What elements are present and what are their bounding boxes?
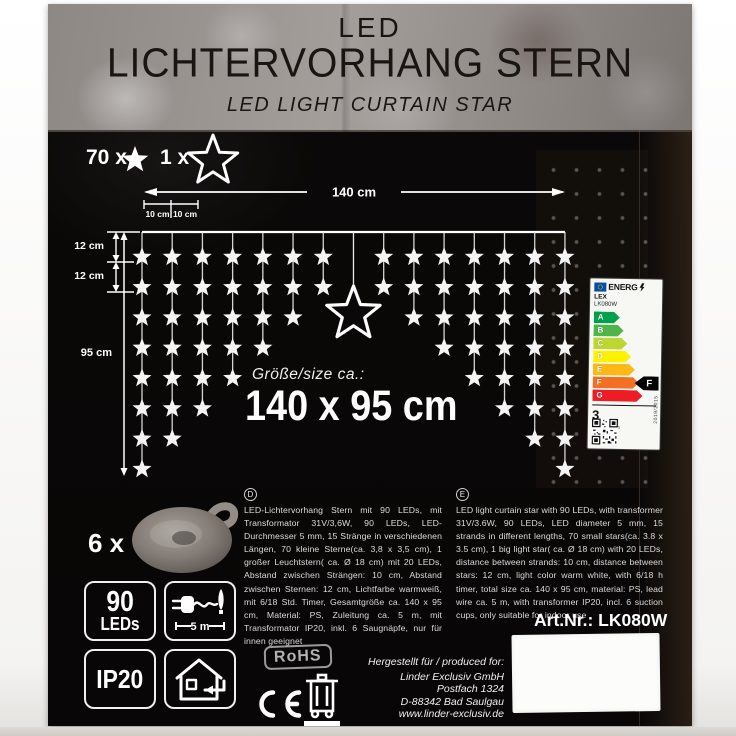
producer-city: D-88342 Bad Saulgau — [338, 696, 504, 709]
product-box-front: LED LICHTERVORHANG STERN LED LIGHT CURTA… — [48, 4, 692, 726]
energy-word: ENERG — [608, 282, 637, 293]
energy-class-arrow: A — [594, 311, 620, 323]
energy-class-arrow: G — [592, 389, 642, 401]
product-photo: { "header": { "brand": "LED", "title": "… — [0, 0, 736, 736]
rohs-badge: RoHS — [264, 644, 332, 670]
power-plug-icon: 5 m — [169, 585, 231, 637]
description-german-text: LED-Lichtervorhang Stern mit 90 LEDs, mi… — [244, 505, 442, 646]
badge-indoor-use — [164, 649, 236, 709]
article-number: Art.Nr.: LK080W — [534, 610, 664, 631]
description-german: D LED-Lichtervorhang Stern mit 90 LEDs, … — [244, 488, 442, 648]
small-star-icon — [163, 429, 182, 447]
energy-class-row-G: G — [592, 389, 656, 403]
small-star-icon — [555, 459, 574, 477]
ce-mark-icon — [252, 688, 304, 720]
small-star-icon — [435, 338, 454, 356]
suction-cup-image — [126, 482, 244, 576]
dimension-label: 10 cm — [173, 209, 198, 219]
description-english: E LED light curtain star with 90 LEDs, w… — [456, 488, 663, 622]
small-star-icon — [223, 368, 242, 386]
small-star-icon — [525, 429, 544, 447]
small-star-icon — [465, 368, 484, 386]
house-indoor-icon — [172, 654, 228, 704]
energy-label-header: ENERG — [594, 281, 658, 292]
size-value: 140 x 95 cm — [245, 382, 458, 431]
energy-regulation: 2019/2015 — [653, 395, 659, 423]
brand-text: LED — [48, 12, 692, 44]
curtain-diagram: 140 cm10 cm10 cm12 cm12 cm95 cm — [60, 185, 582, 485]
energy-class-row-A: A — [594, 311, 658, 325]
producer-pobox: Postfach 1324 — [338, 683, 504, 696]
leds-count: 90 — [106, 590, 133, 615]
small-star-icon — [314, 277, 333, 295]
energy-class-scale: ABCDEFGF — [592, 311, 658, 403]
leds-unit: LEDs — [100, 615, 139, 633]
producer-name: Linder Exclusiv GmbH — [338, 671, 504, 684]
badge-90-leds: 90 LEDs — [84, 581, 156, 641]
energy-class-row-C: C — [593, 337, 657, 351]
dimension-label: 12 cm — [74, 270, 104, 282]
energy-class-arrow: F — [593, 376, 639, 388]
producer-intro: Hergestellt für / produced for: — [338, 656, 504, 669]
table-surface — [0, 727, 736, 736]
big-star-icon — [327, 286, 380, 337]
badge-ip20: IP20 — [84, 649, 156, 709]
eu-flag-icon — [594, 282, 606, 291]
energy-class-arrow: C — [593, 337, 627, 349]
producer-website: www.linder-exclusiv.de — [338, 708, 504, 721]
suction-cup-count: 6 x — [88, 528, 124, 559]
dimension-label: 12 cm — [74, 240, 104, 252]
small-star-icon — [495, 399, 514, 417]
small-star-icon — [133, 459, 152, 477]
dimension-label: 10 cm — [145, 209, 170, 219]
dimension-label: 140 cm — [332, 185, 376, 200]
feature-badges: 90 LEDs 5 m IP20 — [84, 581, 236, 709]
dimension-label: 95 cm — [81, 347, 112, 359]
header-band: LED LICHTERVORHANG STERN LED LIGHT CURTA… — [48, 4, 692, 132]
energy-class-row-D: D — [593, 350, 657, 364]
subtitle: LED LIGHT CURTAIN STAR — [48, 94, 692, 117]
energy-class-row-E: E — [593, 363, 657, 377]
energy-class-arrow: D — [593, 350, 631, 362]
energy-y-glyph — [639, 283, 644, 292]
producer-info: Hergestellt für / produced for: Linder E… — [338, 656, 504, 721]
energy-class-row-B: B — [593, 324, 657, 338]
small-star-icon — [284, 308, 303, 326]
small-star-icon — [374, 277, 393, 295]
small-star-icon — [253, 338, 272, 356]
language-marker-e: E — [456, 488, 469, 501]
small-star-icon — [193, 399, 212, 417]
energy-class-arrow: E — [593, 363, 635, 375]
filled-star-icon — [120, 144, 150, 174]
energy-class-arrow: B — [593, 324, 623, 336]
page-title: LICHTERVORHANG STERN — [48, 41, 692, 87]
energy-model: LK080W — [594, 301, 658, 309]
blank-label-area — [511, 633, 660, 713]
badge-cable-length: 5 m — [164, 581, 236, 641]
cable-length-label: 5 m — [191, 621, 210, 633]
energy-label: ENERG LEX LK080W ABCDEFGF 3 kWh/1000h 20… — [587, 277, 664, 450]
small-star-icon — [404, 308, 423, 326]
description-english-text: LED light curtain star with 90 LEDs, wit… — [456, 505, 663, 620]
language-marker-d: D — [244, 488, 257, 501]
ip-rating: IP20 — [96, 664, 143, 695]
outline-star-icon — [182, 128, 244, 190]
qr-code — [592, 418, 618, 444]
